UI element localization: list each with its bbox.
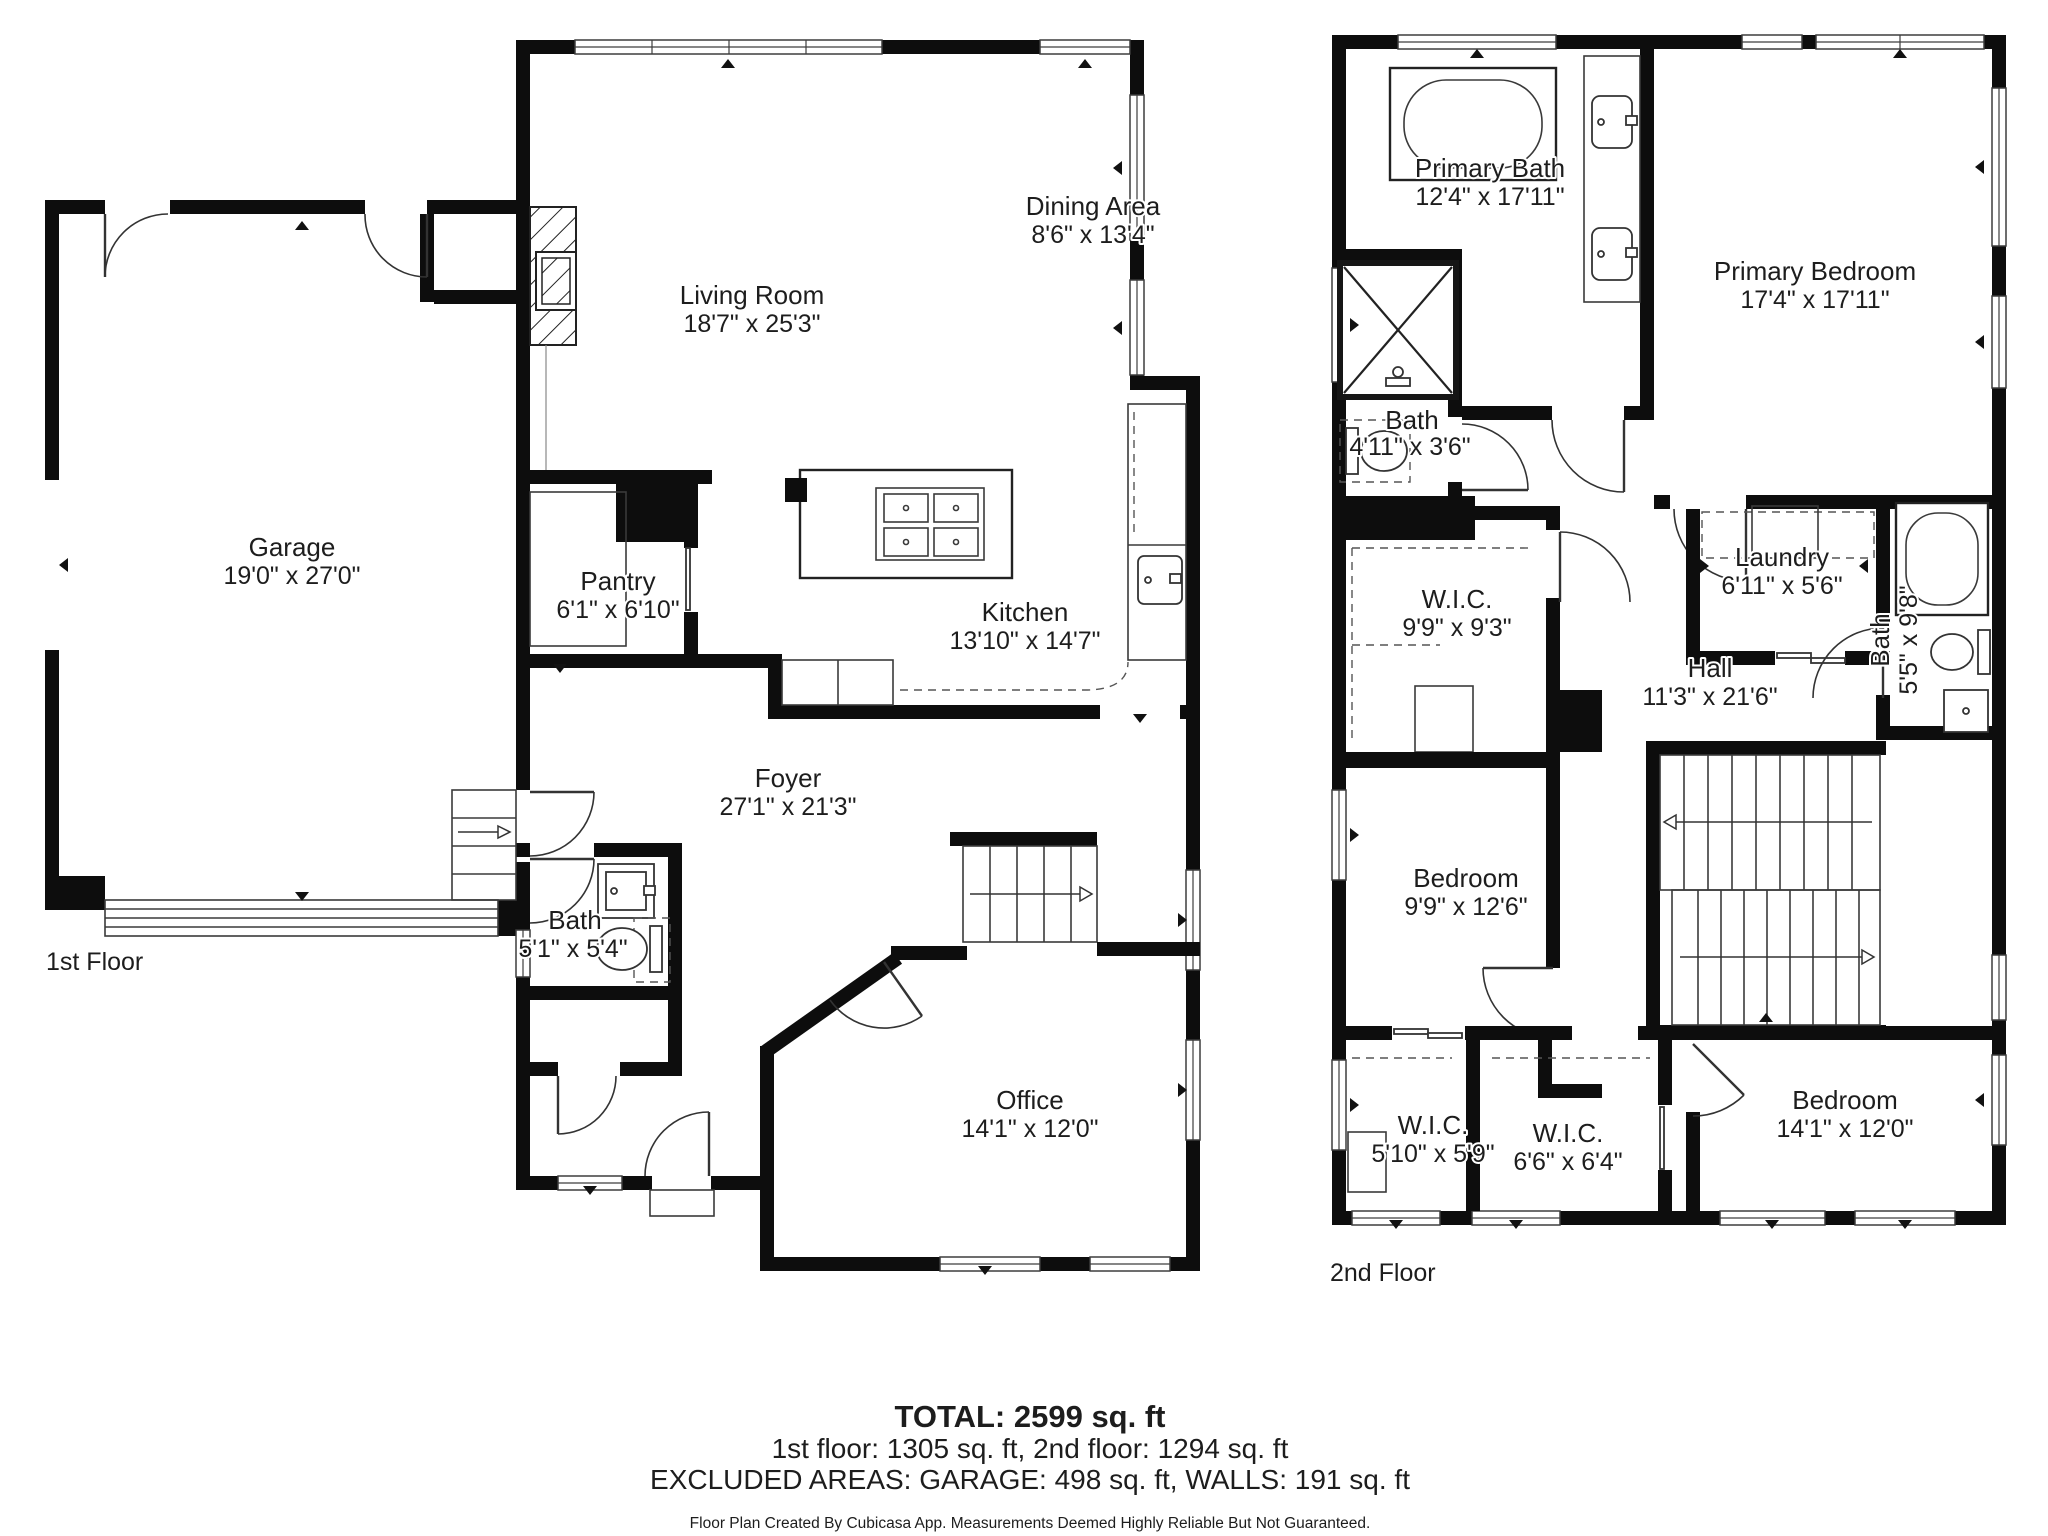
- garage-entry-doors: [105, 214, 427, 277]
- room-label-wic-large: W.I.C.: [1422, 584, 1493, 614]
- room-dims-wic-mid: 6'6" x 6'4": [1513, 1148, 1622, 1176]
- room-dims-bath-small: 4'11" x 3'6": [1349, 433, 1470, 461]
- first-floor-plan: Garage 19'0" x 27'0" Living Room 18'7" x…: [45, 40, 1200, 1275]
- room-label-foyer: Foyer: [755, 763, 822, 793]
- room-dims-pantry: 6'1" x 6'10": [556, 596, 679, 624]
- room-dims-wic-west: 5'10" x 5'9": [1371, 1140, 1494, 1168]
- room-dims-hall: 11'3" x 21'6": [1642, 683, 1777, 711]
- room-dims-living-room: 18'7" x 25'3": [683, 310, 820, 338]
- office-walls: [760, 946, 1200, 1271]
- room-dims-office: 14'1" x 12'0": [961, 1115, 1098, 1143]
- stairs-first-floor: [950, 832, 1200, 956]
- room-dims-bedroom-east: 14'1" x 12'0": [1776, 1115, 1913, 1143]
- summary-block: TOTAL: 2599 sq. ft 1st floor: 1305 sq. f…: [650, 1399, 1410, 1532]
- room-label-bedroom-east: Bedroom: [1792, 1085, 1898, 1115]
- room-label-hall: Hall: [1688, 653, 1733, 683]
- room-dims-bath1: 5'1" x 5'4": [518, 935, 627, 963]
- room-label-garage: Garage: [249, 532, 336, 562]
- floorplan-canvas: Garage 19'0" x 27'0" Living Room 18'7" x…: [0, 0, 2048, 1536]
- stairs-second-floor: [1646, 741, 1886, 1039]
- room-dims-kitchen: 13'10" x 14'7": [949, 627, 1100, 655]
- kitchen-sink: [1138, 556, 1182, 604]
- house-west-wall: [516, 40, 530, 1176]
- room-label-wic-mid: W.I.C.: [1533, 1118, 1604, 1148]
- room-label-primary-bedroom: Primary Bedroom: [1714, 256, 1916, 286]
- room-label-bath-rotated: Bath 5'5" x 9'8": [1865, 585, 1923, 694]
- foyer-south-wall: [516, 1112, 774, 1216]
- room-dims-bedroom-west: 9'9" x 12'6": [1404, 893, 1527, 921]
- floorplan-page: Garage 19'0" x 27'0" Living Room 18'7" x…: [0, 0, 2048, 1536]
- bath-sink: [598, 864, 655, 918]
- kitchen-island: [785, 470, 1012, 578]
- summary-excluded: EXCLUDED AREAS: GARAGE: 498 sq. ft, WALL…: [650, 1464, 1410, 1495]
- svg-text:5'5" x 9'8": 5'5" x 9'8": [1895, 585, 1923, 694]
- room-dims-primary-bath: 12'4" x 17'11": [1415, 183, 1564, 211]
- floor-label-1st: 1st Floor: [46, 948, 143, 976]
- second-floor-plan: Primary Bath 12'4" x 17'11" Primary Bedr…: [1330, 35, 2006, 1287]
- room-label-dining-area: Dining Area: [1026, 191, 1161, 221]
- kitchen-south-wall: [768, 705, 1200, 719]
- room-label-wic-west: W.I.C.: [1398, 1110, 1469, 1140]
- room-label-bath-small: Bath: [1385, 405, 1439, 435]
- room-label-primary-bath: Primary Bath: [1415, 153, 1565, 183]
- room-label-living-room: Living Room: [680, 280, 825, 310]
- room-dims-wic-large: 9'9" x 9'3": [1402, 614, 1511, 642]
- svg-text:Bath: Bath: [1865, 613, 1895, 667]
- foyer-closet: [516, 1000, 682, 1134]
- summary-total: TOTAL: 2599 sq. ft: [894, 1399, 1165, 1434]
- room-dims-dining-area: 8'6" x 13'4": [1031, 221, 1154, 249]
- room-label-laundry: Laundry: [1735, 542, 1829, 572]
- garage-door: [105, 900, 498, 936]
- room-dims-laundry: 6'11" x 5'6": [1721, 572, 1842, 600]
- floor-label-2nd: 2nd Floor: [1330, 1259, 1436, 1287]
- room-label-office: Office: [996, 1085, 1063, 1115]
- summary-disclaimer: Floor Plan Created By Cubicasa App. Meas…: [690, 1515, 1371, 1532]
- bedroom-east: [1686, 1044, 1744, 1211]
- room-dims-garage: 19'0" x 27'0": [223, 562, 360, 590]
- summary-floors: 1st floor: 1305 sq. ft, 2nd floor: 1294 …: [772, 1433, 1289, 1464]
- room-dims-primary-bedroom: 17'4" x 17'11": [1740, 286, 1889, 314]
- living-room-windows: [575, 40, 1130, 54]
- room-label-bedroom-west: Bedroom: [1413, 863, 1519, 893]
- room-label-kitchen: Kitchen: [982, 597, 1069, 627]
- room-dims-foyer: 27'1" x 21'3": [719, 793, 856, 821]
- fireplace: [530, 207, 576, 470]
- room-label-bath1: Bath: [548, 905, 602, 935]
- room-label-pantry: Pantry: [580, 566, 655, 596]
